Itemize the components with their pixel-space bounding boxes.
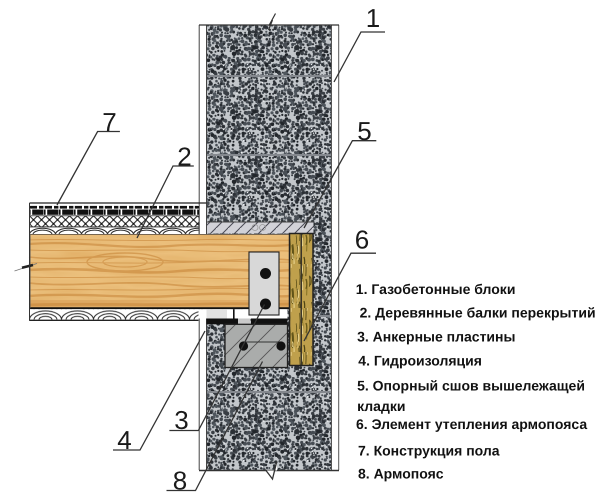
svg-text:7: 7 [102,107,116,137]
svg-text:8: 8 [173,466,187,496]
svg-text:6. Элемент утепления армопояса: 6. Элемент утепления армопояса [356,416,587,432]
svg-text:4. Гидроизоляция: 4. Гидроизоляция [358,353,482,369]
svg-text:5: 5 [357,116,371,146]
svg-text:5. Опорный сшов вышележащей: 5. Опорный сшов вышележащей [357,378,585,394]
svg-text:6: 6 [355,225,369,255]
svg-text:2: 2 [177,142,191,172]
svg-text:4: 4 [117,425,131,455]
svg-text:2. Деревянные балки перекрытий: 2. Деревянные балки перекрытий [360,305,596,321]
svg-text:1: 1 [366,3,380,33]
svg-text:3. Анкерные пластины: 3. Анкерные пластины [357,329,515,345]
svg-text:7. Конструкция пола: 7. Конструкция пола [358,443,500,459]
svg-text:8. Армопояс: 8. Армопояс [358,466,444,482]
svg-text:3: 3 [174,405,188,435]
svg-text:кладки: кладки [357,398,405,414]
svg-text:1. Газобетонные блоки: 1. Газобетонные блоки [356,281,516,297]
